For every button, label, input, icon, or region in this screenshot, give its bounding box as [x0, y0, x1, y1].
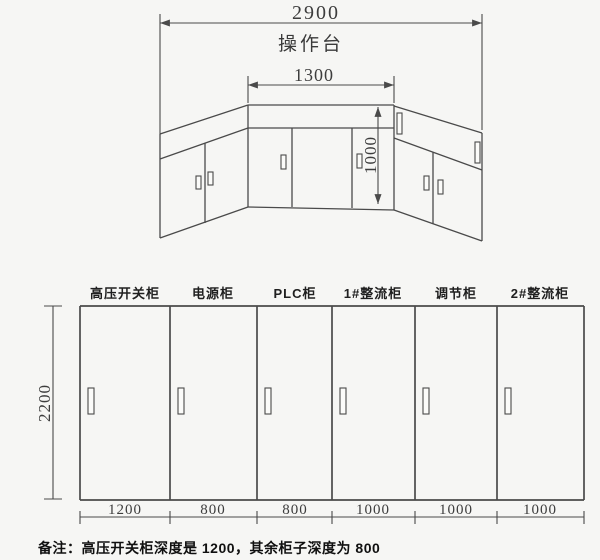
door-handle [357, 154, 362, 168]
cabinet-label: PLC柜 [273, 286, 316, 301]
cabinet-handles [88, 388, 511, 414]
door-handle [340, 388, 346, 414]
center-bottom-edge [248, 207, 394, 210]
cabinet-label: 2#整流柜 [511, 286, 569, 301]
console-title: 操作台 [278, 33, 344, 55]
cabinet-elevation-drawing: 2200 高压开关柜 电源柜 PLC柜 1#整 [35, 286, 584, 524]
note-text: 备注：高压开关柜深度是 1200，其余柜子深度为 800 [37, 540, 380, 556]
left-wing-band-bottom-edge [160, 128, 248, 159]
band-handle [397, 113, 402, 134]
engineering-drawing-page: 2900 操作台 1300 1000 [0, 0, 600, 560]
cabinet-width-value: 800 [200, 502, 226, 518]
dimension-1300-value: 1300 [294, 65, 334, 85]
dimension-1300: 1300 [248, 65, 394, 103]
cabinet-label: 1#整流柜 [344, 286, 402, 301]
door-handle [265, 388, 271, 414]
drawing-canvas: 2900 操作台 1300 1000 [0, 0, 600, 560]
right-wing-bottom-edge [394, 210, 482, 241]
cabinet-width-value: 1000 [439, 502, 473, 518]
door-handle [178, 388, 184, 414]
band-handle [475, 142, 480, 163]
door-handle [88, 388, 94, 414]
door-handle [438, 180, 443, 194]
dimension-2200-value: 2200 [35, 384, 54, 422]
door-handle [208, 172, 213, 185]
cabinet-label: 电源柜 [192, 286, 234, 301]
left-wing-bottom-edge [160, 207, 248, 238]
console-right-wing [394, 106, 482, 241]
right-wing-band-bottom-edge [394, 138, 482, 170]
door-handle [424, 176, 429, 190]
cabinet-width-value: 1200 [108, 502, 142, 518]
cabinet-width-value: 1000 [356, 502, 390, 518]
door-handle [281, 155, 286, 169]
dimension-1000-value: 1000 [361, 136, 380, 174]
console-left-wing [160, 105, 248, 238]
cabinet-width-dimensions: 1200 800 800 1000 1000 1000 [80, 502, 584, 524]
cabinet-label: 高压开关柜 [90, 286, 160, 301]
cabinet-labels: 高压开关柜 电源柜 PLC柜 1#整流柜 调节柜 2#整流柜 [90, 286, 569, 301]
door-handle [423, 388, 429, 414]
cabinet-width-value: 1000 [523, 502, 557, 518]
dimension-1000: 1000 [361, 107, 380, 204]
door-handle [196, 176, 201, 189]
right-wing-top-edge [394, 106, 482, 133]
door-handle [505, 388, 511, 414]
dimension-2200: 2200 [35, 306, 62, 499]
cabinet-width-value: 800 [282, 502, 308, 518]
console-drawing: 2900 操作台 1300 1000 [160, 2, 482, 241]
dimension-2900-value: 2900 [292, 2, 340, 24]
cabinet-label: 调节柜 [435, 286, 477, 301]
left-wing-top-edge [160, 105, 248, 134]
